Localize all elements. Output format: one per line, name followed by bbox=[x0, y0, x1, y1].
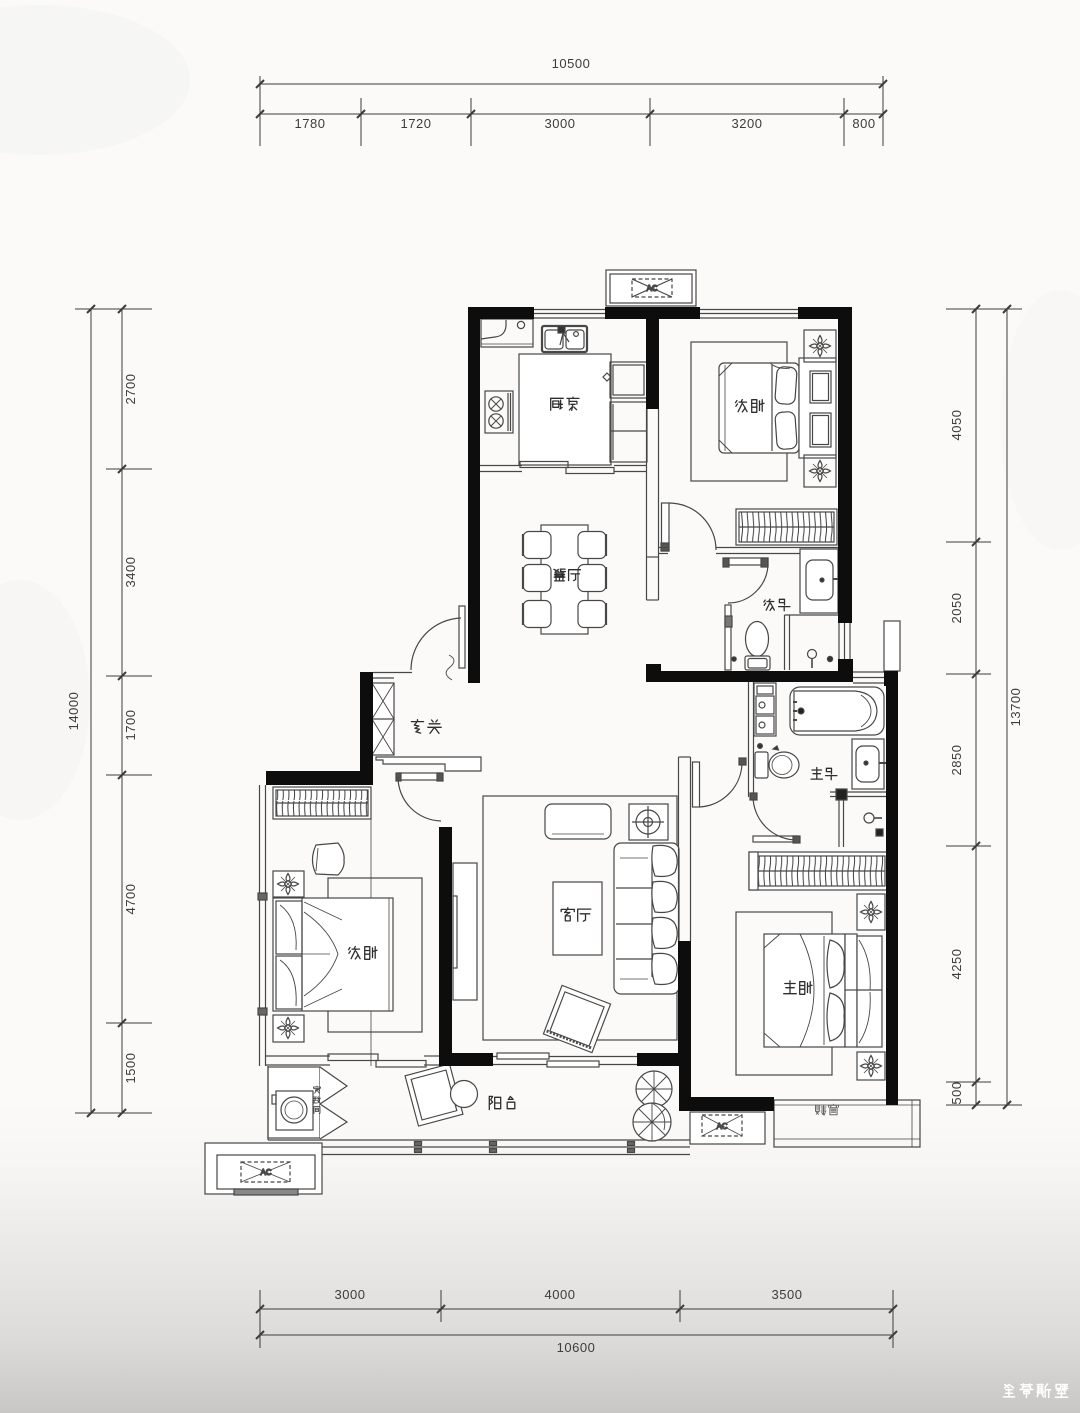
svg-text:2700: 2700 bbox=[123, 374, 138, 405]
svg-text:4000: 4000 bbox=[545, 1287, 576, 1302]
svg-text:1700: 1700 bbox=[123, 710, 138, 741]
svg-text:AC: AC bbox=[646, 284, 657, 293]
svg-text:1780: 1780 bbox=[295, 116, 326, 131]
svg-text:13700: 13700 bbox=[1008, 688, 1023, 727]
svg-text:AC: AC bbox=[260, 1168, 271, 1177]
svg-text:14000: 14000 bbox=[66, 692, 81, 731]
svg-text:4700: 4700 bbox=[123, 884, 138, 915]
svg-text:3000: 3000 bbox=[545, 116, 576, 131]
svg-text:2850: 2850 bbox=[949, 745, 964, 776]
svg-text:AC: AC bbox=[716, 1122, 727, 1131]
svg-text:3500: 3500 bbox=[772, 1287, 803, 1302]
svg-text:3400: 3400 bbox=[123, 557, 138, 588]
svg-text:10500: 10500 bbox=[552, 56, 591, 71]
svg-text:1720: 1720 bbox=[401, 116, 432, 131]
svg-text:800: 800 bbox=[852, 116, 875, 131]
svg-text:4050: 4050 bbox=[949, 410, 964, 441]
svg-text:3200: 3200 bbox=[732, 116, 763, 131]
svg-text:3000: 3000 bbox=[335, 1287, 366, 1302]
svg-text:4250: 4250 bbox=[949, 949, 964, 980]
svg-text:10600: 10600 bbox=[557, 1340, 596, 1355]
svg-text:1500: 1500 bbox=[123, 1053, 138, 1084]
svg-text:2050: 2050 bbox=[949, 593, 964, 624]
svg-text:500: 500 bbox=[949, 1081, 964, 1104]
